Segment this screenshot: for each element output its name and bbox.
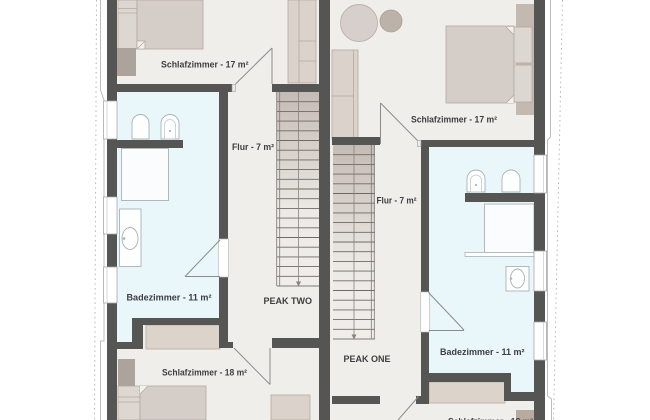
svg-text:Flur - 7 m²: Flur - 7 m²: [377, 196, 417, 206]
svg-text:Schlafzimmer - 17 m²: Schlafzimmer - 17 m²: [411, 115, 497, 125]
svg-text:Flur - 7 m²: Flur - 7 m²: [232, 142, 274, 152]
svg-text:Badezimmer - 11 m²: Badezimmer - 11 m²: [127, 293, 212, 303]
svg-text:Schlafzimmer - 18 m²: Schlafzimmer - 18 m²: [162, 368, 247, 378]
svg-text:Schlafzimmer - 17 m²: Schlafzimmer - 17 m²: [161, 60, 249, 70]
svg-text:Schlafzimmer - 18 m²: Schlafzimmer - 18 m²: [448, 417, 533, 420]
svg-text:PEAK TWO: PEAK TWO: [264, 296, 313, 306]
svg-text:Badezimmer - 11 m²: Badezimmer - 11 m²: [440, 347, 525, 357]
svg-text:PEAK ONE: PEAK ONE: [344, 354, 391, 364]
